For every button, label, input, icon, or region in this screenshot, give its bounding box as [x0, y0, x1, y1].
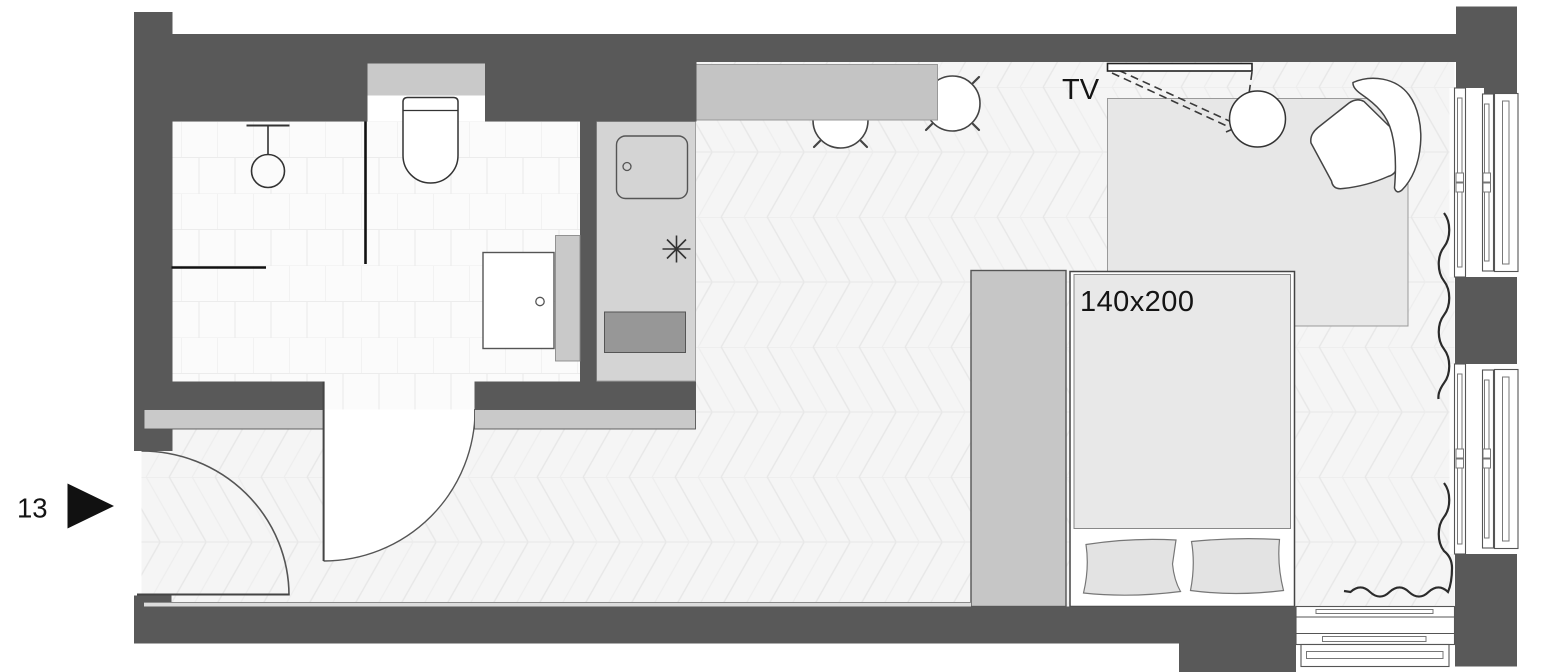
svg-text:TV: TV	[1062, 74, 1100, 106]
svg-text:140x200: 140x200	[1080, 286, 1194, 318]
svg-text:13: 13	[17, 493, 48, 524]
